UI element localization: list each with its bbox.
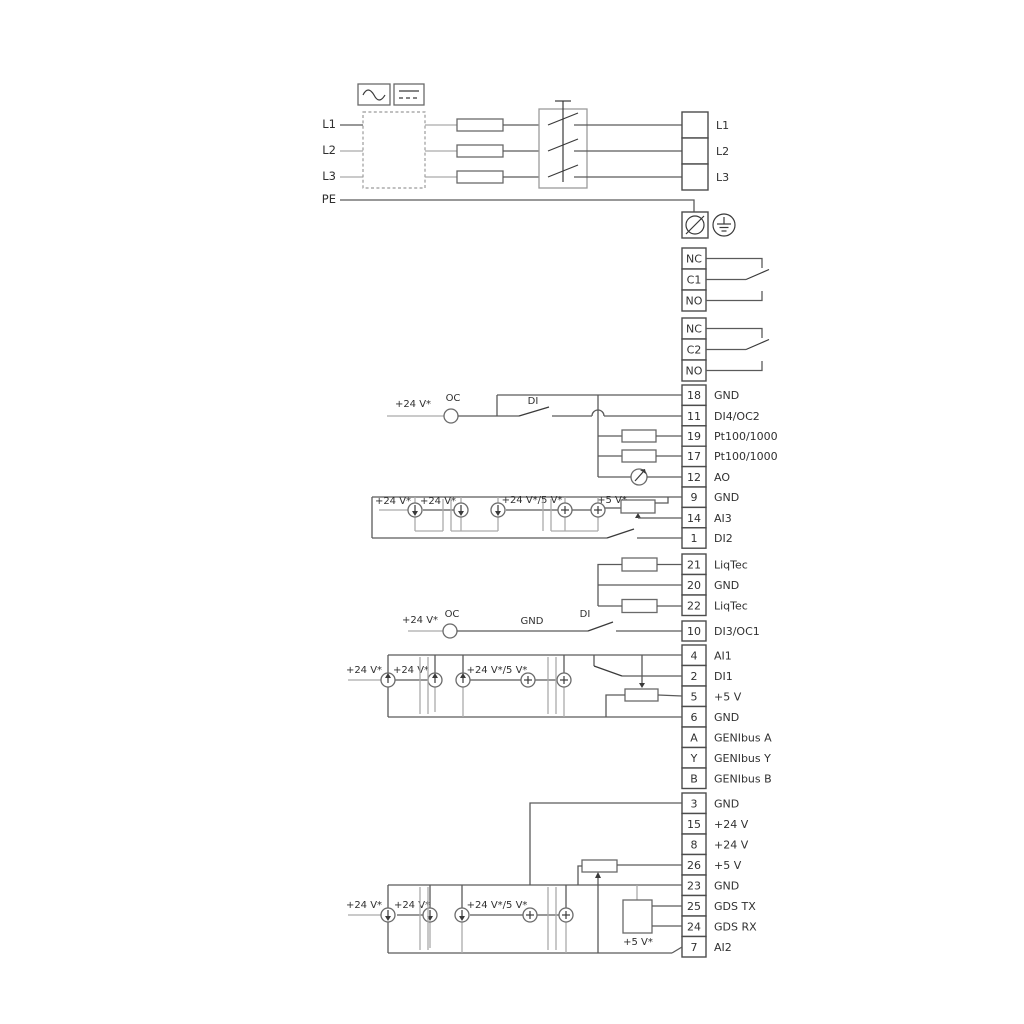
terminal-label: GENIbus B [714,773,772,786]
fuse-icon [457,119,503,131]
terminal-number: 11 [687,410,701,423]
earth-ground-icon [713,214,735,236]
terminal-label: +5 V [714,859,742,872]
open-collector-icon [444,409,458,423]
terminal-number: 9 [691,491,698,504]
current-source-icon [428,655,442,712]
terminal-label: L3 [716,171,729,184]
terminal-number: NO [686,295,703,308]
terminal-number: 20 [687,579,701,592]
power-input-label-l2: L2 [322,143,336,157]
resistor-icon [622,450,656,462]
open-collector-icon [443,624,457,638]
voltage-source-icon [559,885,573,953]
terminal-label: +24 V [714,818,749,831]
wiring-diagram-page: L1 L2 L3 PE [0,0,1024,1024]
plus24v-label: +24 V* [375,496,411,507]
terminal-number: 22 [687,600,701,613]
oc-label: OC [445,609,460,620]
terminal-label: DI2 [714,532,733,545]
plus24v-label: +24 V* [402,615,438,626]
power-terminal-block: L1 L2 L3 [682,112,729,190]
terminal-label: Pt100/1000 [714,450,778,463]
terminal-label: LiqTec [714,559,748,572]
plus24v-5v-label: +24 V*/5 V* [467,665,528,676]
terminal-label: DI3/OC1 [714,625,760,638]
terminal-label: L2 [716,145,729,158]
io-terminal-strip-3: 3 15 8 26 23 25 24 7 GND +24 V +24 V +5 … [682,793,757,957]
dc-symbol-icon [394,84,424,105]
terminal-number: C1 [687,274,702,287]
terminal-number: NC [686,253,702,266]
plus24v-5v-label: +24 V*/5 V* [467,900,528,911]
plus24v-label: +24 V* [394,900,430,911]
power-input-label-l3: L3 [322,169,336,183]
resistor-icon [622,558,657,571]
terminal-label: GND [714,491,739,504]
relay1-block: NC C1 NO [682,248,769,311]
terminal-l3 [682,164,708,190]
switch-contact-icon [519,407,549,416]
terminal-label: GENIbus A [714,732,772,745]
potentiometer-icon [621,497,682,518]
terminal-number: 21 [687,559,701,572]
ai1-circuit: +24 V* +24 V* +24 V*/5 V* [346,655,682,717]
wiring-diagram: L1 L2 L3 PE [0,0,1024,1024]
potentiometer-icon [606,655,682,717]
voltage-source-icon [523,908,537,922]
terminal-number: NO [686,365,703,378]
current-source-icon [381,673,395,687]
terminal-number: 4 [691,650,698,663]
liqtec-sensor-circuit [598,558,682,613]
terminal-number: 17 [687,450,701,463]
terminal-number: C2 [687,344,702,357]
power-section: L1 L2 L3 PE [322,84,735,238]
current-source-icon [423,885,437,948]
plus24v-label: +24 V* [393,665,429,676]
pt100-sensor-circuit [598,430,682,462]
terminal-label: GND [714,389,739,402]
terminal-l2 [682,138,708,164]
plus24v-5v-label: +24 V*/5 V* [502,495,563,506]
main-switch-icon [539,101,587,188]
current-source-icon [455,885,469,953]
switch-contact-icon [607,529,634,538]
terminal-number: 14 [687,512,701,525]
di-label: DI [528,396,539,407]
switch-contact-icon [594,666,622,676]
filter-box [363,112,425,188]
di-label: DI [580,609,591,620]
power-input-label-pe: PE [322,192,336,206]
terminal-number: NC [686,323,702,336]
io-terminal-strip-2: 10 DI3/OC1 4 2 5 6 A Y B AI1 DI1 +5 V GN… [682,621,772,789]
changeover-contact-icon [706,329,769,371]
terminal-label: GND [714,798,739,811]
terminal-label: GDS TX [714,900,756,913]
terminal-number: 12 [687,471,701,484]
terminal-label: GND [714,711,739,724]
di1-switch [594,655,682,676]
terminal-number: 18 [687,389,701,402]
terminal-label: AI1 [714,650,732,663]
terminal-label: DI4/OC2 [714,410,760,423]
plus24v-label: +24 V* [395,399,431,410]
fuse-icon [457,171,503,183]
ao-indicator-circuit [598,469,682,485]
di3-oc1-circuit: +24 V* OC GND DI [402,609,682,638]
terminal-number: 2 [691,670,698,683]
fuse-icon [457,145,503,157]
terminal-label: L1 [716,119,729,132]
gnd-label: GND [521,616,544,627]
terminal-number: 1 [691,532,698,545]
terminal-label: GDS RX [714,921,757,934]
io-terminal-strip-1: 18 11 19 17 12 9 14 1 GND DI4/OC2 Pt100/… [682,385,778,548]
terminal-number: 24 [687,921,701,934]
relay2-block: NC C2 NO [682,318,769,381]
terminal-label: GND [714,880,739,893]
terminal-number: 5 [691,691,698,704]
resistor-icon [622,600,657,613]
voltage-source-icon [521,673,535,687]
voltage-source-icon [557,655,571,717]
gds-sensor-box [623,900,652,933]
terminal-number: 3 [691,798,698,811]
liqtec-terminal-strip: 21 20 22 LiqTec GND LiqTec [598,554,748,616]
terminal-label: LiqTec [714,600,748,613]
terminal-label: GENIbus Y [714,752,771,765]
terminal-number: 26 [687,859,701,872]
terminal-number: A [690,732,698,745]
terminal-number: B [690,773,698,786]
terminal-number: 25 [687,900,701,913]
terminal-label: DI1 [714,670,733,683]
terminal-number: 6 [691,711,698,724]
terminal-label: GND [714,579,739,592]
terminal-number: 10 [687,625,701,638]
power-input-label-l1: L1 [322,117,336,131]
terminal-number: 19 [687,430,701,443]
ai2-gds-circuit: +24 V* +24 V* +24 V*/5 V* [346,803,682,953]
terminal-number: 23 [687,880,701,893]
terminal-label: Pt100/1000 [714,430,778,443]
oc-label: OC [446,393,461,404]
current-source-icon [454,497,468,531]
switch-contact-icon [588,622,613,631]
terminal-label: AO [714,471,730,484]
ai3-circuit: +24 V* +24 V* +24 V*/5 V* +5 V* [372,495,682,538]
terminal-number: Y [690,752,698,765]
terminal-l1 [682,112,708,138]
plus24v-label: +24 V* [346,665,382,676]
terminal-number: 8 [691,839,698,852]
changeover-contact-icon [706,259,769,301]
terminal-label: +24 V [714,839,749,852]
terminal-label: AI2 [714,941,732,954]
terminal-label: +5 V [714,691,742,704]
plus24v-label: +24 V* [346,900,382,911]
resistor-icon [622,430,656,442]
plus5v-label: +5 V* [623,937,653,948]
ground-screw-icon [682,212,708,238]
terminal-number: 15 [687,818,701,831]
ac-symbol-icon [358,84,390,105]
terminal-label: AI3 [714,512,732,525]
current-source-icon [381,908,395,922]
gds-sensor: +5 V* [623,885,682,948]
terminal-number: 7 [691,941,698,954]
